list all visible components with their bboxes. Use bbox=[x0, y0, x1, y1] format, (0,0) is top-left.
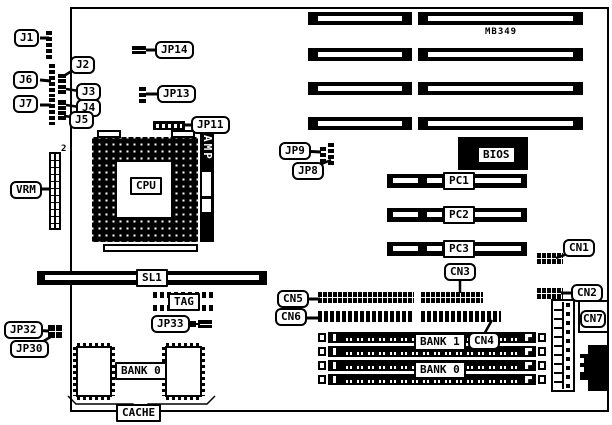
bank0-cache-label: BANK 0 bbox=[115, 362, 167, 380]
callout-cn3: CN3 bbox=[444, 263, 476, 281]
tag-label: TAG bbox=[168, 293, 200, 311]
callout-cn2: CN2 bbox=[571, 284, 603, 302]
callout-j6: J6 bbox=[13, 71, 38, 89]
callout-cn6: CN6 bbox=[275, 308, 307, 326]
cpu-label: CPU bbox=[130, 177, 162, 195]
callout-vrm: VRM bbox=[10, 181, 42, 199]
callout-j5: J5 bbox=[69, 111, 94, 129]
pc3-label: PC3 bbox=[443, 240, 475, 258]
callout-jp13: JP13 bbox=[157, 85, 196, 103]
bios-label: BIOS bbox=[477, 146, 516, 164]
callout-j1: J1 bbox=[14, 29, 39, 47]
callout-jp30: JP30 bbox=[10, 340, 49, 358]
callout-cn5: CN5 bbox=[277, 290, 309, 308]
pc1-label: PC1 bbox=[443, 172, 475, 190]
callout-jp8: JP8 bbox=[292, 162, 324, 180]
callout-j7: J7 bbox=[13, 95, 38, 113]
sl1-label: SL1 bbox=[136, 269, 168, 287]
cache-label: CACHE bbox=[116, 404, 161, 422]
bank1-memory-label: BANK 1 bbox=[414, 333, 466, 351]
callout-j2: J2 bbox=[70, 56, 95, 74]
motherboard-layout-diagram: 2 AMP MB349 bbox=[0, 0, 612, 425]
cn7-label: CN7 bbox=[580, 310, 606, 328]
callout-jp9: JP9 bbox=[279, 142, 311, 160]
pc2-label: PC2 bbox=[443, 206, 475, 224]
callout-cn4: CN4 bbox=[468, 332, 500, 350]
callout-jp33: JP33 bbox=[151, 315, 190, 333]
callout-jp11: JP11 bbox=[191, 116, 230, 134]
callout-jp32: JP32 bbox=[4, 321, 43, 339]
callout-cn1: CN1 bbox=[563, 239, 595, 257]
callout-jp14: JP14 bbox=[155, 41, 194, 59]
leader-line-group bbox=[28, 38, 582, 331]
bank0-memory-label: BANK 0 bbox=[414, 361, 466, 379]
